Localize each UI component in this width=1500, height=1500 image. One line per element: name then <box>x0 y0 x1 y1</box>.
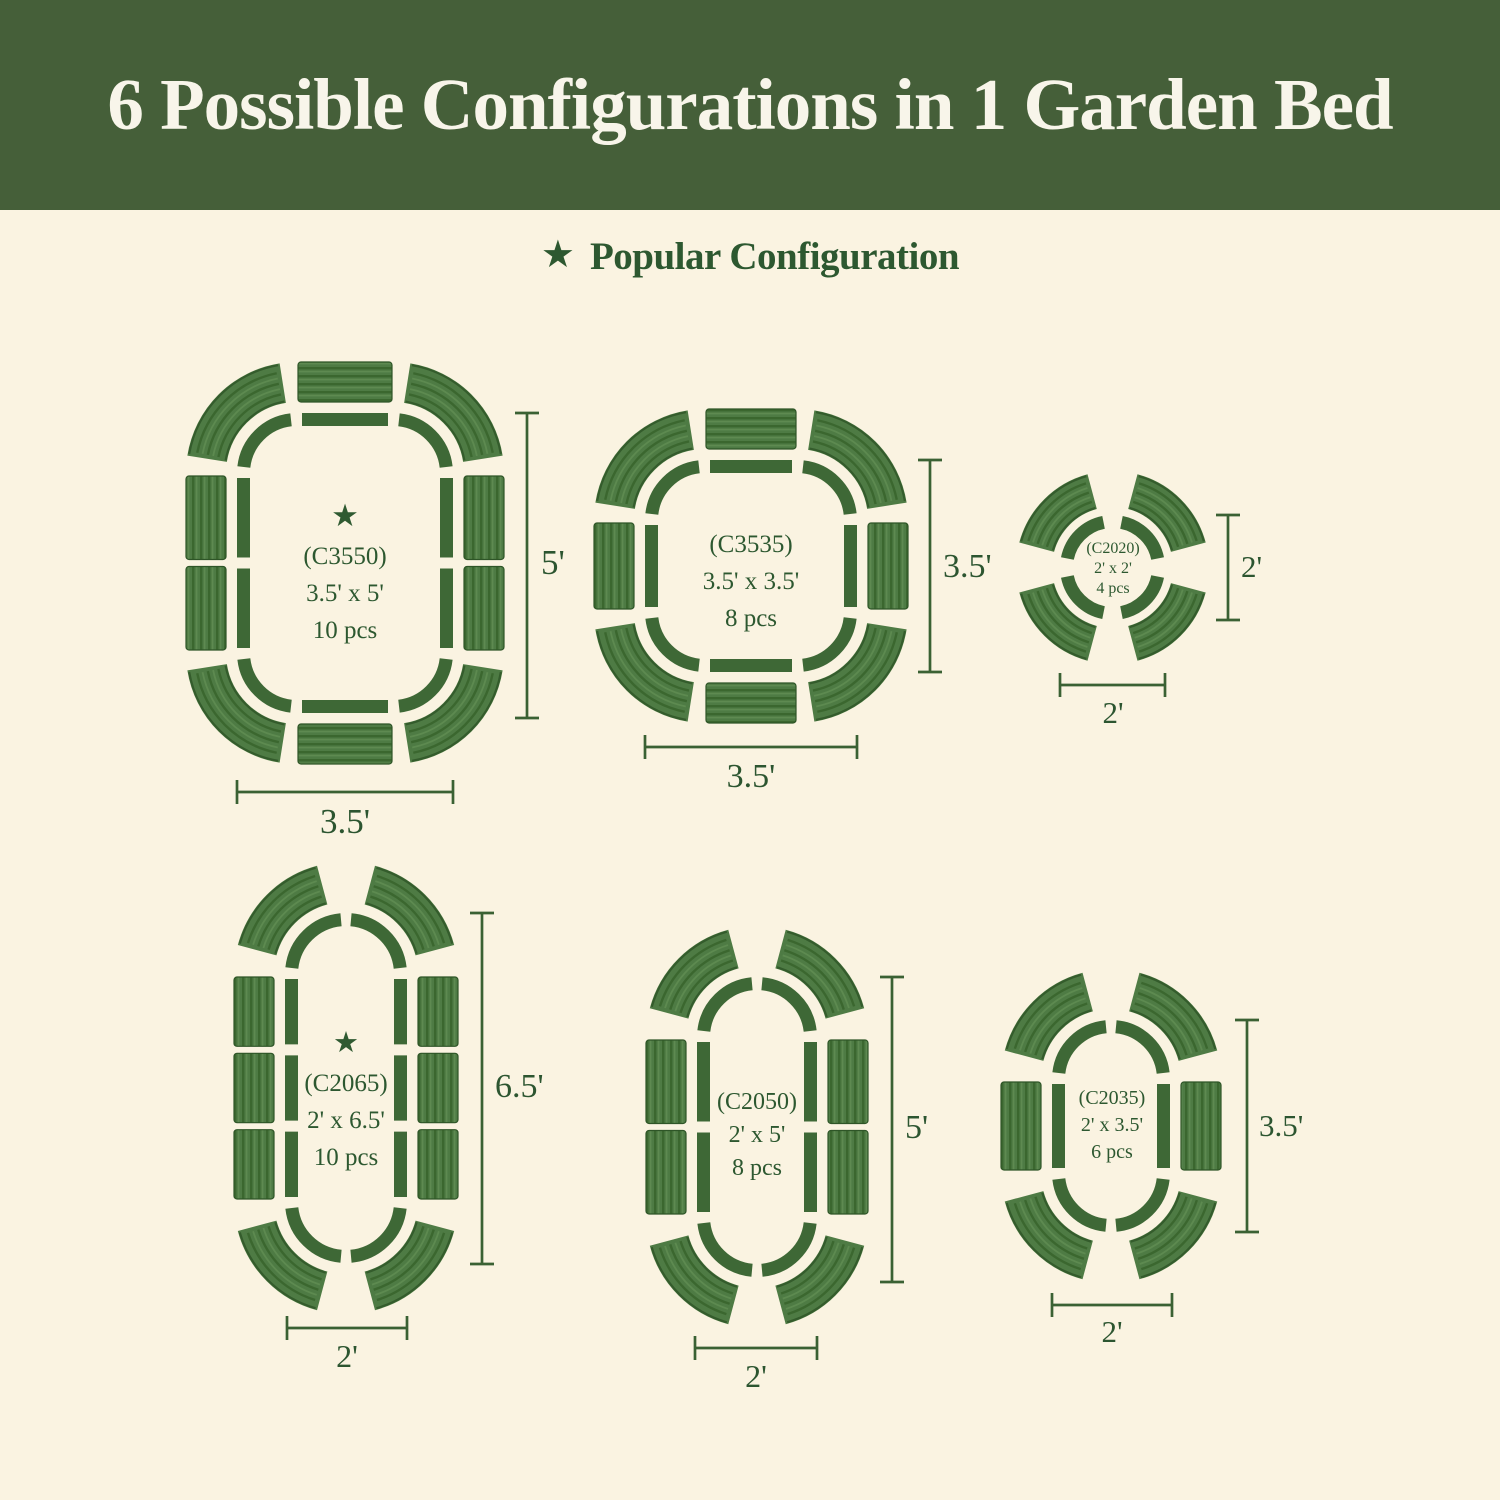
config-size: 3.5' x 5' <box>245 575 445 612</box>
config-pieces: 10 pcs <box>246 1139 446 1176</box>
popular-star-icon: ★ <box>245 500 445 531</box>
height-dimension-label: 2' <box>1241 549 1262 585</box>
star-icon: ★ <box>541 236 575 274</box>
config-label-block: (C2065) 2' x 6.5' 10 pcs <box>246 1065 446 1176</box>
config-label-block: (C2020) 2' x 2' 4 pcs <box>1033 539 1193 599</box>
width-dimension-label: 2' <box>696 1358 816 1395</box>
width-dimension-label: 3.5' <box>681 758 821 796</box>
garden-bed-infographic: 6 Possible Configurations in 1 Garden Be… <box>0 0 1500 1500</box>
config-label-block: (C2035) 2' x 3.5' 6 pcs <box>1012 1085 1212 1166</box>
config-size: 2' x 6.5' <box>246 1102 446 1139</box>
config-label-block: (C2050) 2' x 5' 8 pcs <box>657 1086 857 1185</box>
height-dimension-label: 6.5' <box>495 1068 544 1106</box>
config-code: (C3550) <box>245 538 445 575</box>
config-c2065: ★ (C2065) 2' x 6.5' 10 pcs 6.5' 2' <box>233 861 533 1376</box>
config-size: 2' x 5' <box>657 1119 857 1152</box>
width-dimension-label: 3.5' <box>275 802 415 842</box>
config-size: 2' x 3.5' <box>1012 1112 1212 1139</box>
config-label-block: (C3550) 3.5' x 5' 10 pcs <box>245 538 445 649</box>
config-code: (C2065) <box>246 1065 446 1102</box>
width-dimension-label: 2' <box>1053 695 1173 731</box>
config-c2035: (C2035) 2' x 3.5' 6 pcs 3.5' 2' <box>1000 968 1295 1348</box>
config-size: 3.5' x 3.5' <box>651 563 851 600</box>
config-code: (C2035) <box>1012 1085 1212 1112</box>
config-pieces: 10 pcs <box>245 612 445 649</box>
garden-bed-diagram-c2020 <box>1014 469 1294 729</box>
height-dimension-label: 5' <box>905 1109 928 1147</box>
config-code: (C2050) <box>657 1086 857 1119</box>
popular-configuration-legend: ★ Popular Configuration <box>0 234 1500 279</box>
width-dimension-label: 2' <box>287 1338 407 1375</box>
height-dimension-label: 5' <box>541 543 565 583</box>
config-size: 2' x 2' <box>1033 559 1193 579</box>
title-banner: 6 Possible Configurations in 1 Garden Be… <box>0 0 1500 210</box>
config-pieces: 8 pcs <box>651 600 851 637</box>
config-pieces: 8 pcs <box>657 1152 857 1185</box>
legend-label: Popular Configuration <box>590 234 959 279</box>
config-pieces: 6 pcs <box>1012 1139 1212 1166</box>
config-c3535: (C3535) 3.5' x 3.5' 8 pcs 3.5' 3.5' <box>593 408 973 788</box>
height-dimension-label: 3.5' <box>1259 1108 1303 1144</box>
width-dimension-label: 2' <box>1052 1314 1172 1350</box>
config-pieces: 4 pcs <box>1033 579 1193 599</box>
page-title: 6 Possible Configurations in 1 Garden Be… <box>107 63 1392 147</box>
config-code: (C2020) <box>1033 539 1193 559</box>
config-code: (C3535) <box>651 526 851 563</box>
config-label-block: (C3535) 3.5' x 3.5' 8 pcs <box>651 526 851 637</box>
config-c3550: ★ (C3550) 3.5' x 5' 10 pcs 5' 3.5' <box>175 350 590 850</box>
config-c2050: (C2050) 2' x 5' 8 pcs 5' 2' <box>645 925 940 1390</box>
config-c2020: (C2020) 2' x 2' 4 pcs 2' 2' <box>1014 469 1294 729</box>
height-dimension-label: 3.5' <box>943 548 992 586</box>
popular-star-icon: ★ <box>246 1029 446 1058</box>
